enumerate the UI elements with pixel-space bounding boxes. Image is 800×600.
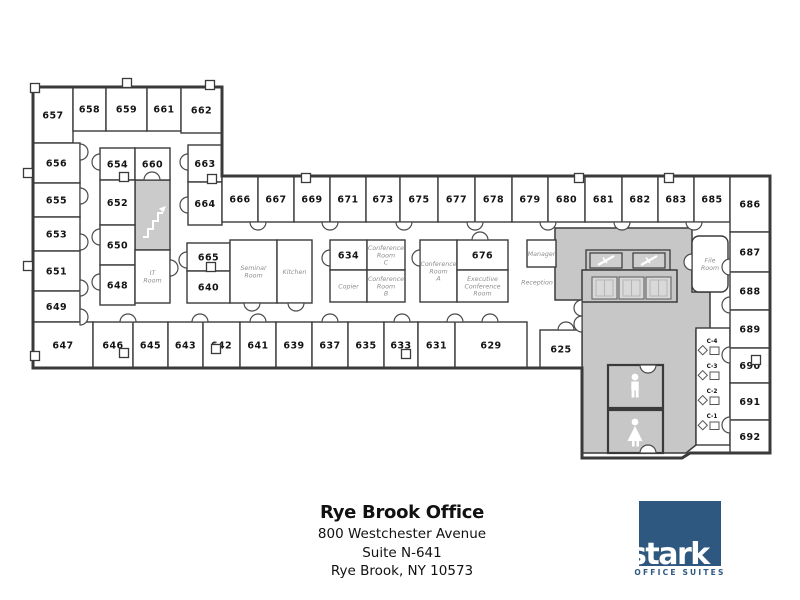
room-label: 669 [301, 194, 322, 205]
door-arc [80, 234, 88, 250]
room-643: 643 [168, 322, 203, 368]
door-arc [80, 144, 88, 160]
room-685: 685 [694, 176, 730, 222]
room-676: 676 [457, 240, 508, 270]
door-arc [472, 232, 488, 240]
room-675: 675 [400, 176, 438, 222]
address-street: 800 Westchester Avenue [242, 525, 562, 544]
room-645: 645 [133, 322, 168, 368]
room-label: 683 [665, 194, 686, 205]
room-666: 666 [222, 176, 258, 222]
room-label: 634 [338, 250, 359, 261]
cubicle-label: C-3 [707, 364, 718, 370]
room-label: 665 [198, 252, 219, 263]
room-reception: Reception [521, 278, 553, 286]
room-671: 671 [330, 176, 366, 222]
room-687: 687 [730, 232, 770, 272]
room-kitchen: Kitchen [277, 240, 312, 303]
door-arc [558, 322, 574, 330]
room-label: 649 [46, 302, 67, 313]
room-673: 673 [366, 176, 400, 222]
room-label: 680 [556, 194, 577, 205]
room-label: 686 [739, 199, 760, 210]
room-conference-room-a: ConferenceRoomA [420, 240, 457, 302]
location-info: Rye Brook Office 800 Westchester Avenue … [242, 502, 562, 581]
wall-tab [31, 352, 40, 361]
door-arc [80, 188, 88, 204]
room-conference-room-c: ConferenceRoomC [367, 240, 405, 270]
room-seminar-room: SeminarRoom [230, 240, 277, 303]
door-arc [394, 314, 410, 322]
room-label: 658 [79, 104, 100, 115]
cubicle-label: C-2 [707, 389, 718, 395]
room-label: 663 [194, 159, 215, 170]
room-655: 655 [33, 183, 80, 217]
room-631: 631 [418, 322, 455, 368]
room-640: 640 [187, 271, 230, 303]
wall-tab [24, 169, 33, 178]
womens-restroom-icon [636, 441, 639, 447]
cubicle-label: C-1 [707, 414, 718, 420]
room-647: 647 [33, 322, 93, 368]
cubicle-desk [710, 397, 719, 405]
door-arc [92, 154, 100, 170]
door-arc [540, 222, 556, 230]
room-633: 633 [384, 322, 418, 368]
door-arc [322, 314, 338, 322]
room-label: 645 [140, 340, 161, 351]
room-label: 653 [46, 229, 67, 240]
door-arc [322, 222, 338, 230]
room-label: 640 [198, 282, 219, 293]
wall-tab [575, 174, 584, 183]
room-label: 688 [739, 286, 760, 297]
room-635: 635 [348, 322, 384, 368]
room-679: 679 [512, 176, 548, 222]
door-arc [396, 222, 412, 230]
room-label: 652 [107, 198, 128, 209]
room-executive-conference-room: ExecutiveConferenceRoom [457, 270, 508, 302]
room-label: 664 [194, 199, 215, 210]
room-label: 629 [480, 340, 501, 351]
room-651: 651 [33, 251, 80, 291]
room-label: 689 [739, 324, 760, 335]
wall-tab [402, 350, 411, 359]
room-690: 690 [730, 348, 770, 383]
room-label: 692 [739, 432, 760, 443]
door-arc [288, 303, 304, 311]
room-label: Copier [338, 283, 359, 290]
room-label: 676 [472, 250, 493, 261]
room-conference-room-b: ConferenceRoomB [367, 270, 405, 302]
wall-tab [24, 262, 33, 271]
room-label: 625 [550, 344, 571, 355]
mens-restroom-icon [631, 382, 638, 391]
door-arc [722, 297, 730, 313]
room-label: 643 [175, 340, 196, 351]
room-label: 631 [426, 340, 447, 351]
room-label: 635 [355, 340, 376, 351]
room-label: 671 [337, 194, 358, 205]
room-label: 666 [229, 194, 250, 205]
room-label: 660 [142, 159, 163, 170]
room-label: 682 [629, 194, 650, 205]
room-662: 662 [181, 87, 222, 133]
wall-tab [665, 174, 674, 183]
room-copier: Copier [330, 270, 367, 302]
room-678: 678 [475, 176, 512, 222]
room-label: 681 [593, 194, 614, 205]
wall-tab [120, 173, 129, 182]
door-arc [192, 314, 208, 322]
room-654: 654 [100, 148, 135, 180]
room-label: 673 [372, 194, 393, 205]
cubicle-desk [710, 422, 719, 430]
room-659: 659 [106, 87, 147, 131]
door-arc [482, 314, 498, 322]
room-641: 641 [240, 322, 276, 368]
room-label: 650 [107, 240, 128, 251]
wall-tab [206, 81, 215, 90]
door-arc [180, 197, 188, 213]
room-label: 637 [319, 340, 340, 351]
mens-restroom-icon [632, 391, 635, 398]
room-681: 681 [585, 176, 622, 222]
door-arc [412, 250, 420, 266]
door-arc [179, 252, 187, 268]
room-664: 664 [188, 182, 222, 225]
room-667: 667 [258, 176, 294, 222]
room-642: 642 [203, 322, 240, 368]
door-arc [250, 222, 266, 230]
office-title: Rye Brook Office [242, 502, 562, 523]
room-label: 656 [46, 158, 67, 169]
address-suite: Suite N-641 [242, 544, 562, 563]
mens-restroom-icon [636, 391, 639, 398]
cubicle-desk [710, 372, 719, 380]
room-label: 685 [701, 194, 722, 205]
cubicle-label: C-4 [707, 339, 718, 345]
room-label: 647 [52, 340, 73, 351]
mens-restroom-icon [632, 374, 639, 381]
room-692: 692 [730, 420, 770, 453]
stark-logo: stark OFFICE SUITES [639, 501, 721, 566]
door-arc [244, 303, 260, 311]
room-label: 667 [265, 194, 286, 205]
room-manager: Manager [527, 240, 556, 267]
room-688: 688 [730, 272, 770, 310]
wall-tab [123, 79, 132, 88]
door-arc [322, 250, 330, 266]
room-label: 655 [46, 195, 67, 206]
room-648: 648 [100, 265, 135, 305]
womens-restroom-icon [632, 419, 639, 426]
door-arc [170, 260, 178, 276]
stark-logo-wordmark: stark [629, 540, 709, 570]
room-label: 639 [283, 340, 304, 351]
room-label: 651 [46, 266, 67, 277]
room-658: 658 [73, 87, 106, 131]
stairwell [135, 180, 170, 250]
door-arc [574, 300, 582, 316]
womens-restroom-icon [632, 441, 635, 447]
door-arc [80, 280, 88, 296]
room-label: 657 [42, 110, 63, 121]
room-label: 677 [446, 194, 467, 205]
wall-tab [752, 356, 761, 365]
wall-tab [208, 175, 217, 184]
door-arc [467, 222, 483, 230]
cubicle-desk [710, 347, 719, 355]
room-649: 649 [33, 291, 80, 322]
room-677: 677 [438, 176, 475, 222]
room-661: 661 [147, 87, 181, 131]
room-label: Kitchen [283, 268, 307, 276]
address-city: Rye Brook, NY 10573 [242, 562, 562, 581]
wall-tab [212, 345, 221, 354]
room-637: 637 [312, 322, 348, 368]
door-arc [120, 314, 136, 322]
room-639: 639 [276, 322, 312, 368]
room-label: 662 [191, 105, 212, 116]
room-label: 687 [739, 247, 760, 258]
room-669: 669 [294, 176, 330, 222]
room-689: 689 [730, 310, 770, 348]
door-arc [250, 314, 266, 322]
room-683: 683 [658, 176, 694, 222]
room-label: 661 [153, 104, 174, 115]
room-650: 650 [100, 225, 135, 265]
stark-logo-tagline: OFFICE SUITES [632, 568, 728, 577]
wall-tab [207, 263, 216, 272]
room-691: 691 [730, 383, 770, 420]
door-arc [92, 229, 100, 245]
room-label: Manager [528, 251, 556, 258]
room-629: 629 [455, 322, 527, 368]
room-label: Reception [521, 278, 553, 286]
room-686: 686 [730, 176, 770, 232]
room-label: 679 [519, 194, 540, 205]
room-656: 656 [33, 143, 80, 183]
room-label: 691 [739, 397, 760, 408]
room-label: 648 [107, 280, 128, 291]
room-646: 646 [93, 322, 133, 368]
room-625: 625 [540, 330, 582, 368]
room-657: 657 [33, 87, 73, 143]
floor-plan-page: C-4C-3C-2C-16576586596616626566556536516… [0, 0, 800, 600]
door-arc [92, 274, 100, 290]
room-label: 654 [107, 159, 128, 170]
door-arc [447, 314, 463, 322]
room-653: 653 [33, 217, 80, 251]
wall-tab [120, 349, 129, 358]
room-652: 652 [100, 180, 135, 225]
door-arc [180, 154, 188, 170]
room-it-room: ITRoom [135, 250, 170, 303]
wall-tab [302, 174, 311, 183]
room-634: 634 [330, 240, 367, 270]
room-682: 682 [622, 176, 658, 222]
wall-tab [31, 84, 40, 93]
room-label: 678 [483, 194, 504, 205]
room-label: 659 [116, 104, 137, 115]
room-label: 641 [247, 340, 268, 351]
room-label: 675 [408, 194, 429, 205]
